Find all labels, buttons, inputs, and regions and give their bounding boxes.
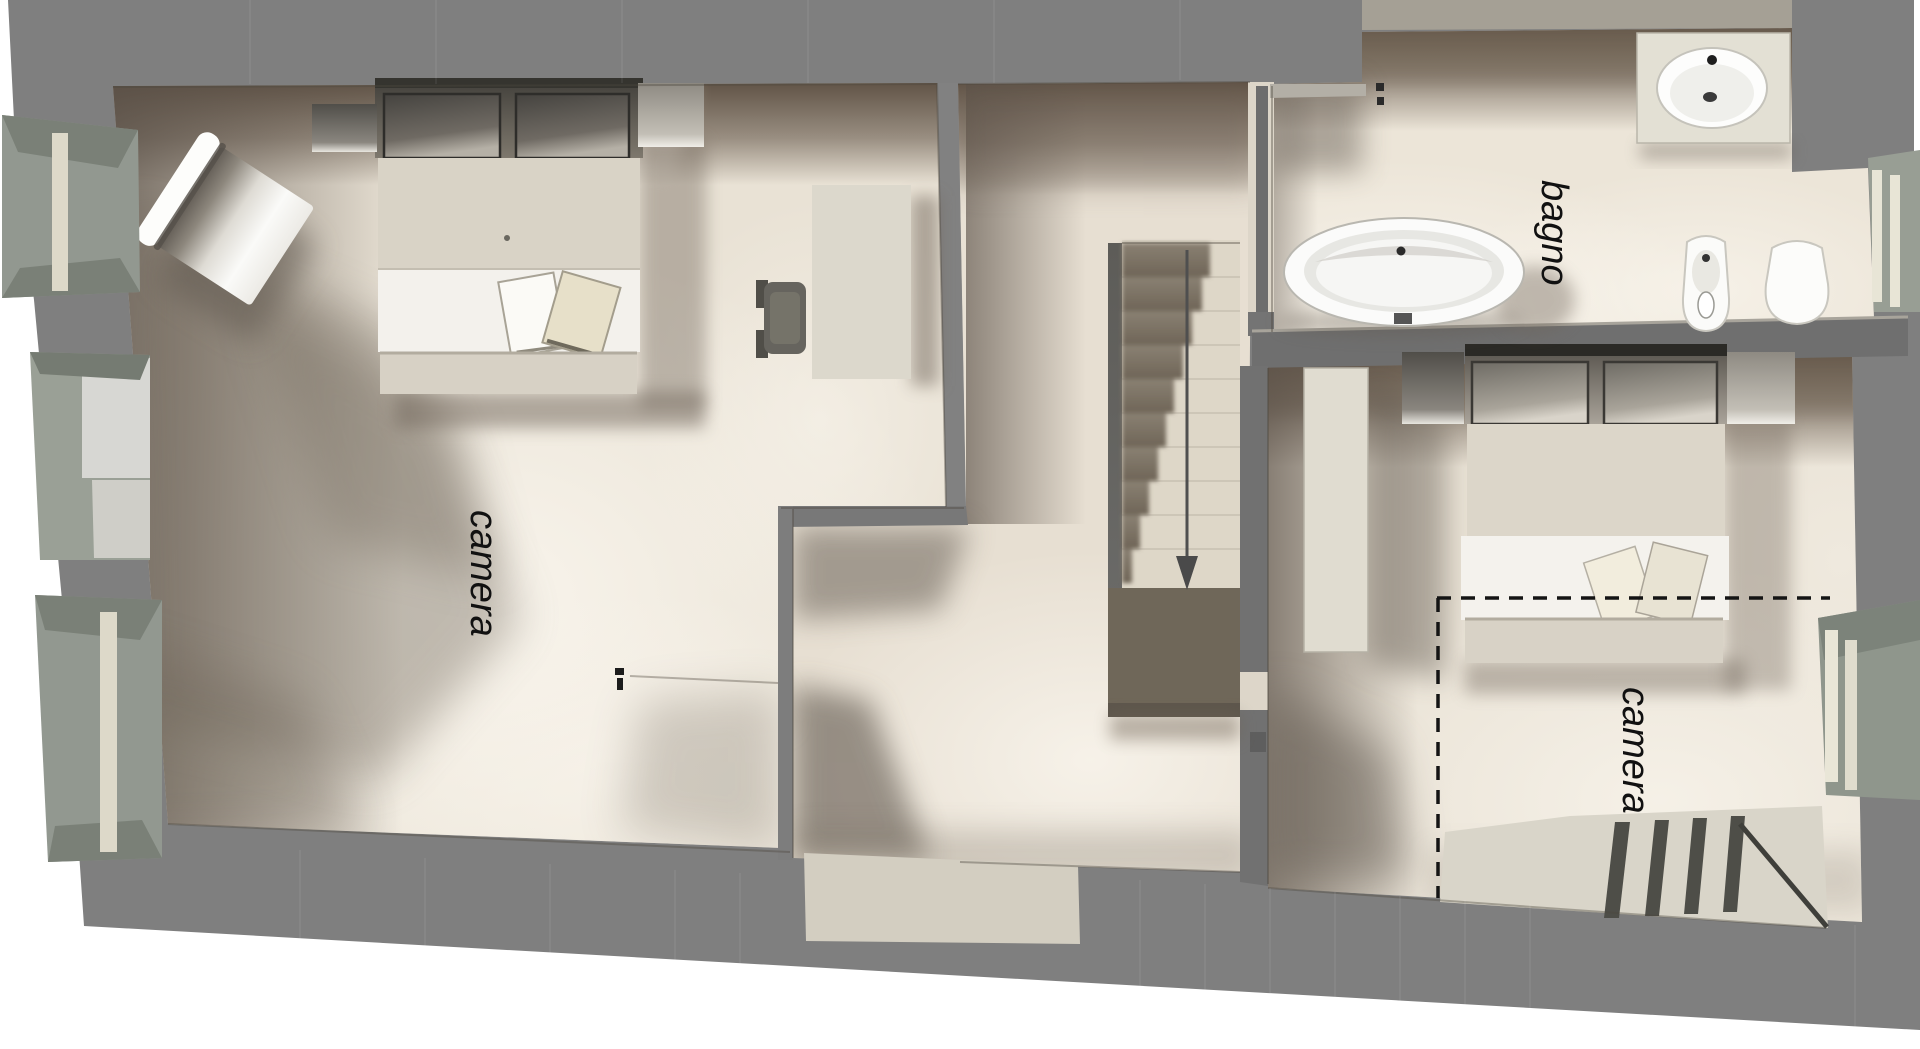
svg-text:bagno: bagno (1533, 180, 1575, 286)
svg-text:camera: camera (462, 510, 504, 637)
svg-text:camera: camera (1614, 687, 1656, 814)
